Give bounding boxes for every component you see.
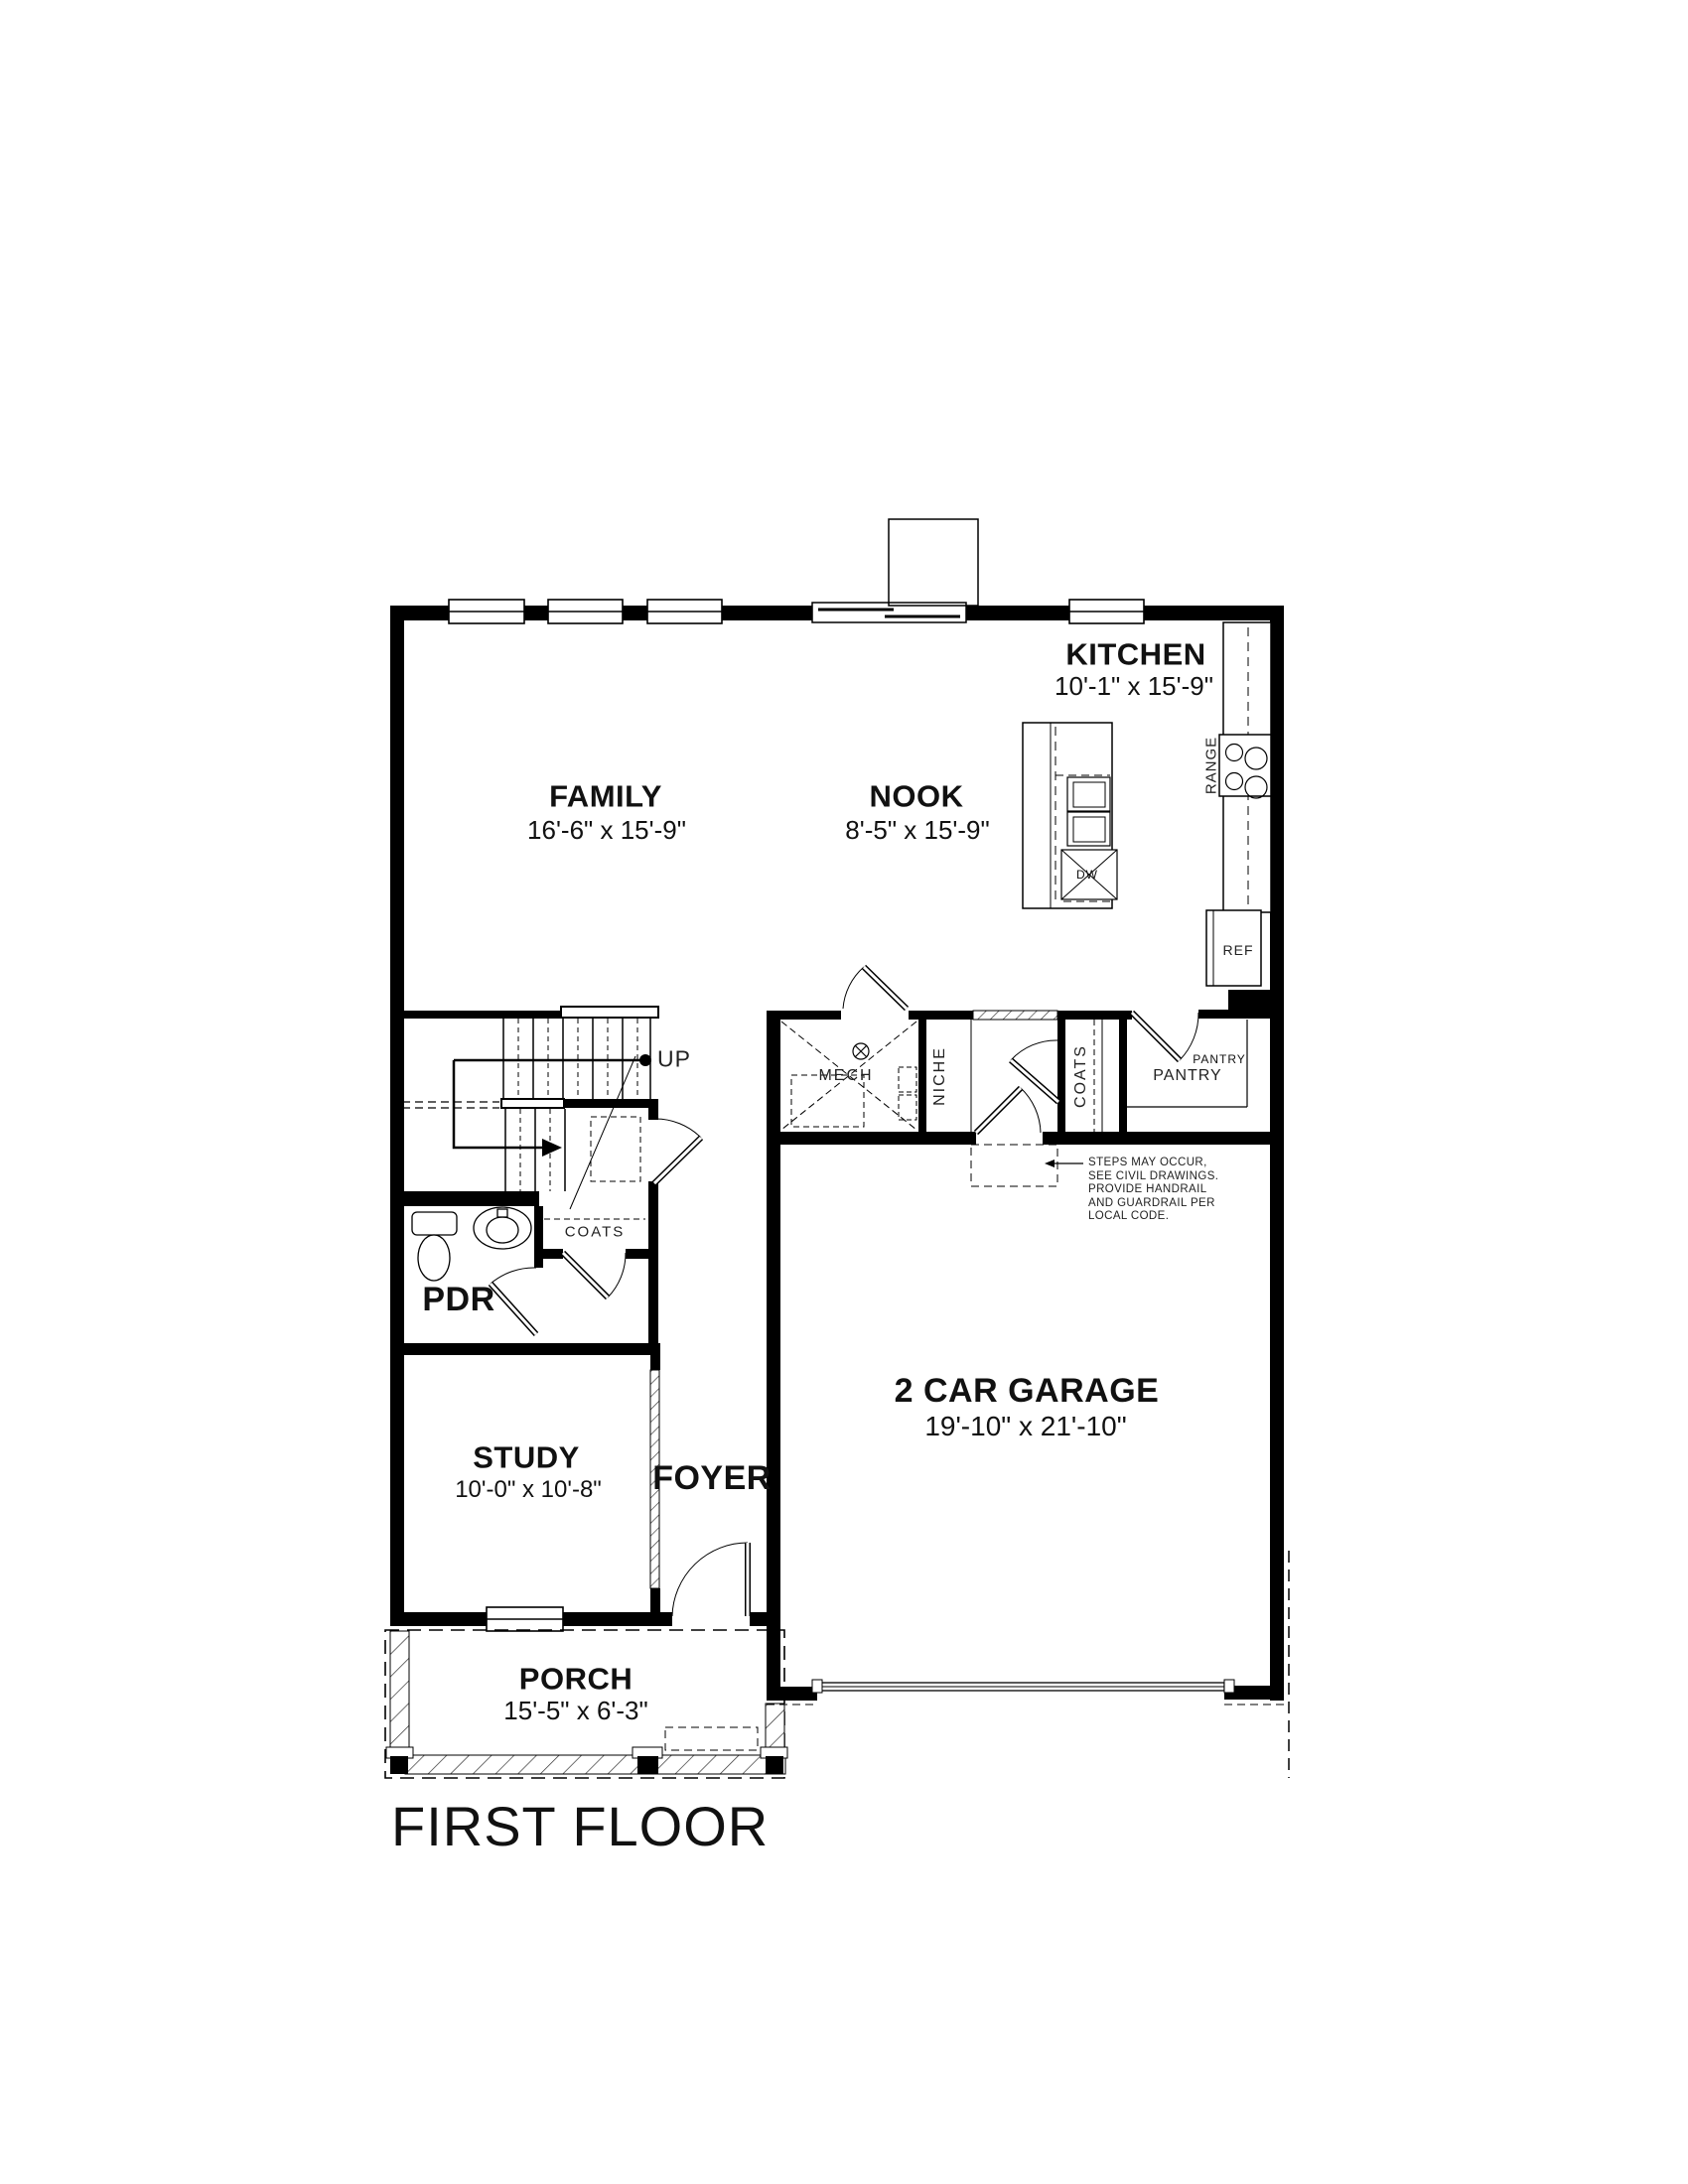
front-door (672, 1543, 748, 1616)
powder-label: PDR (422, 1283, 494, 1316)
coats-mudroom-label: COATS (1073, 1044, 1089, 1108)
driveway-dashes (767, 1551, 1289, 1778)
garage-door (812, 1680, 1234, 1693)
garage-entry-door (976, 1088, 1041, 1133)
hall-coats-door (563, 1253, 626, 1297)
dishwasher-label: DW (1076, 869, 1098, 881)
doors (491, 967, 1198, 1616)
family-dims: 16'-6" x 15'-9" (527, 817, 686, 843)
exterior-walls (390, 606, 1284, 1701)
mech-label: MECH (818, 1068, 873, 1084)
hatched-openings (650, 1011, 1057, 1588)
pantry-door (1132, 1013, 1198, 1060)
steps-note: STEPS MAY OCCUR, SEE CIVIL DRAWINGS. PRO… (1088, 1157, 1218, 1224)
range-counter (1219, 622, 1271, 912)
note-leader-line (971, 1145, 1083, 1186)
foyer-label: FOYER (652, 1461, 772, 1495)
page-title: FIRST FLOOR (391, 1799, 769, 1854)
hall-door (654, 1119, 701, 1183)
pantry-label: PANTRY (1153, 1068, 1221, 1084)
sink (474, 1207, 531, 1249)
floor-plan-canvas: KITCHEN 10'-1" x 15'-9" FAMILY 16'-6" x … (0, 0, 1688, 2184)
pantry-callout-label: PANTRY (1193, 1053, 1246, 1065)
garage-label: 2 CAR GARAGE (895, 1374, 1160, 1408)
floor-plan-drawing (0, 0, 1688, 2184)
study-label: STUDY (473, 1442, 580, 1473)
coats-shelves (544, 1020, 1102, 1219)
range-label: RANGE (1204, 737, 1219, 794)
chimney-bump (889, 519, 978, 606)
nook-label: NOOK (870, 781, 964, 812)
kitchen-island (1023, 723, 1117, 908)
coats-hall-label: COATS (565, 1225, 626, 1240)
nook-door (843, 967, 907, 1009)
porch-dims: 15'-5" x 6'-3" (503, 1698, 647, 1723)
kitchen-dims: 10'-1" x 15'-9" (1055, 673, 1213, 699)
family-label: FAMILY (549, 781, 662, 812)
study-dims: 10'-0" x 10'-8" (455, 1478, 602, 1502)
stairs-up-label: UP (657, 1048, 691, 1071)
porch-label: PORCH (519, 1664, 633, 1695)
refrigerator-label: REF (1223, 943, 1254, 957)
garage-dims: 19'-10" x 21'-10" (924, 1413, 1126, 1440)
nook-dims: 8'-5" x 15'-9" (845, 817, 989, 843)
powder-door (491, 1268, 536, 1334)
vent-symbol (853, 1043, 869, 1059)
niche-label: NICHE (932, 1046, 948, 1106)
stairs (402, 1019, 650, 1209)
toilet (412, 1212, 457, 1281)
kitchen-label: KITCHEN (1065, 639, 1205, 670)
